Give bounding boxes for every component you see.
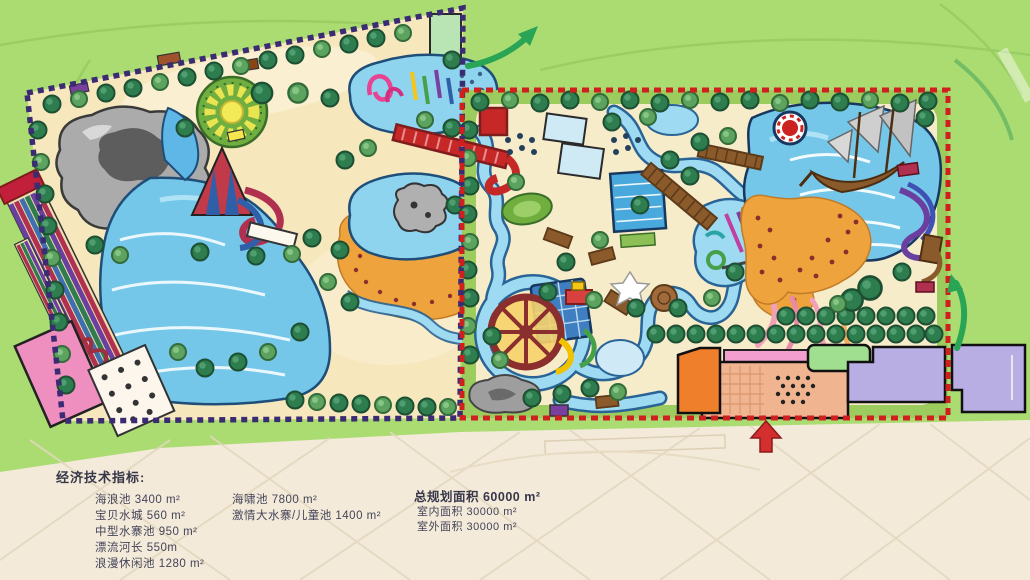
ring-float — [774, 112, 806, 144]
lavender-building-outer — [952, 345, 1025, 412]
pale-pool-2 — [558, 143, 604, 179]
master-plan-canvas: 经济技术指标: 海浪池 3400 m² 宝贝水城 560 m² 中型水寨池 95… — [0, 0, 1030, 580]
orange-building — [678, 348, 720, 413]
pale-pool-1 — [543, 113, 586, 144]
east-parcel — [393, 90, 948, 418]
purple-hut — [550, 405, 568, 416]
site-plan-drawing — [0, 0, 1030, 580]
